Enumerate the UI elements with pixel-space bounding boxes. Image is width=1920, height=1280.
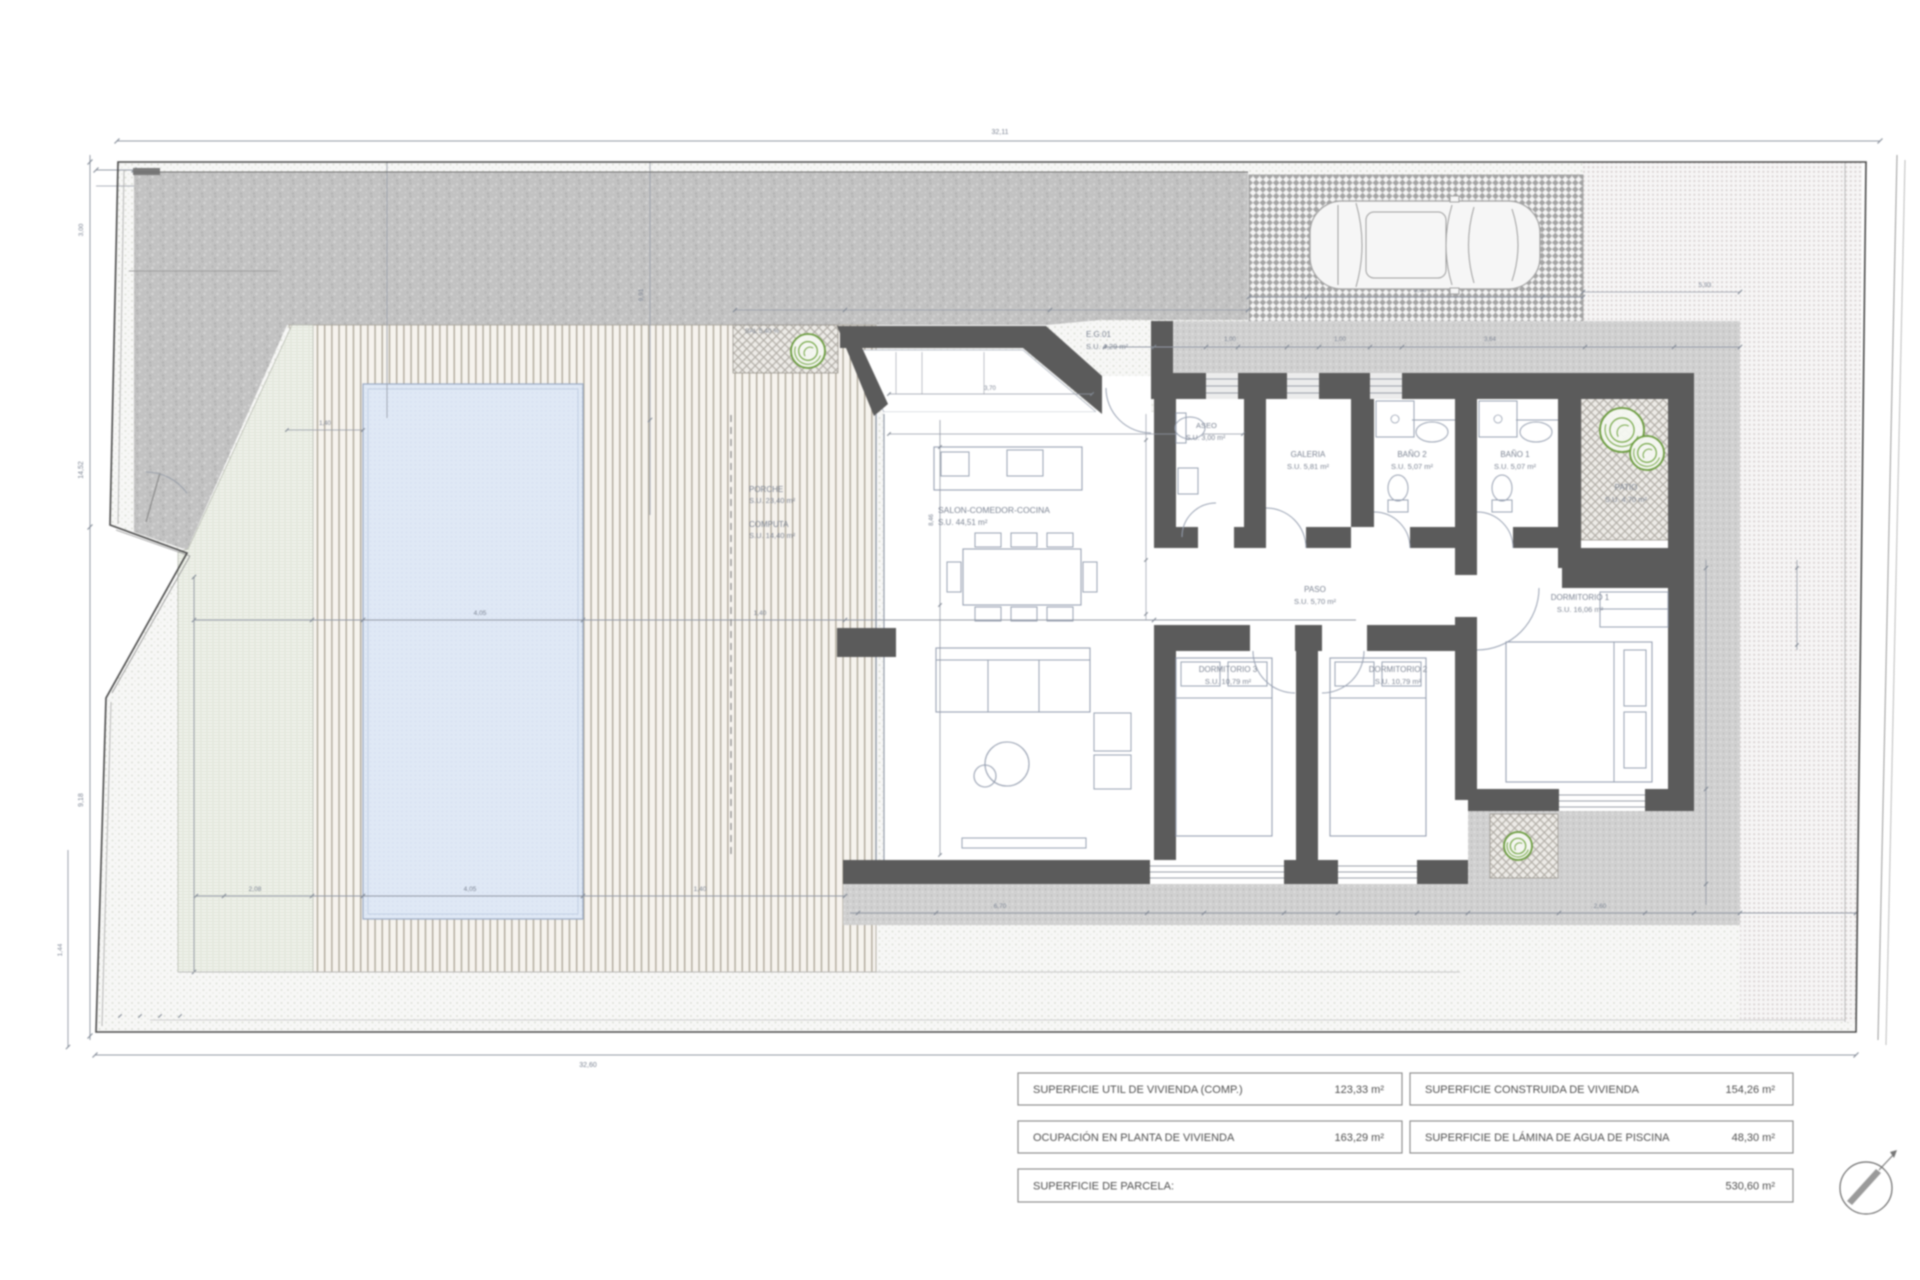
svg-text:SUPERFICIE CONSTRUIDA DE VIVIE: SUPERFICIE CONSTRUIDA DE VIVIENDA (1425, 1084, 1640, 1096)
svg-text:123,33 m²: 123,33 m² (1334, 1084, 1384, 1096)
svg-text:S.U. 3,00 m²: S.U. 3,00 m² (1186, 435, 1226, 442)
svg-text:SUPERFICIE DE PARCELA:: SUPERFICIE DE PARCELA: (1033, 1181, 1174, 1193)
svg-text:48,30 m²: 48,30 m² (1732, 1132, 1776, 1144)
svg-text:1,40: 1,40 (754, 610, 767, 617)
svg-text:14,52: 14,52 (78, 461, 85, 479)
svg-text:32,11: 32,11 (992, 129, 1009, 136)
svg-text:PORCHE: PORCHE (749, 485, 783, 494)
svg-text:S.U. 5,07 m²: S.U. 5,07 m² (1494, 462, 1537, 471)
svg-text:BAÑO 1: BAÑO 1 (1500, 450, 1530, 459)
svg-text:163,29 m²: 163,29 m² (1334, 1132, 1384, 1144)
svg-text:ASEO: ASEO (1196, 421, 1217, 430)
svg-text:SUPERFICIE UTIL DE VIVIENDA (: SUPERFICIE UTIL DE VIVIENDA (COMP.) (1033, 1084, 1243, 1096)
svg-text:DORMITORIO 3: DORMITORIO 3 (1199, 665, 1258, 674)
svg-text:1,40: 1,40 (319, 421, 331, 427)
svg-text:PATIO: PATIO (1615, 483, 1638, 492)
svg-text:4,05: 4,05 (474, 610, 487, 617)
svg-text:S.U. 4,29 m²: S.U. 4,29 m² (1086, 342, 1129, 351)
svg-text:COMPUTA: COMPUTA (749, 520, 789, 529)
svg-text:1,40: 1,40 (694, 886, 707, 893)
svg-text:BAÑO 2: BAÑO 2 (1397, 450, 1427, 459)
svg-text:2,08: 2,08 (249, 886, 262, 893)
svg-text:S.U. 14,40 m²: S.U. 14,40 m² (749, 531, 796, 540)
svg-text:4,05: 4,05 (464, 886, 477, 893)
svg-text:2,60: 2,60 (1594, 903, 1607, 910)
svg-text:154,26 m²: 154,26 m² (1725, 1084, 1775, 1096)
svg-text:8,46: 8,46 (929, 514, 935, 526)
svg-text:SAL 5,40 %: SAL 5,40 % (745, 328, 779, 335)
svg-text:PASO: PASO (1304, 585, 1326, 594)
svg-text:5,93: 5,93 (1699, 282, 1712, 289)
svg-text:S.U. 5,70 m²: S.U. 5,70 m² (1294, 597, 1337, 606)
svg-text:GALERIA: GALERIA (1291, 450, 1326, 459)
svg-text:1,00: 1,00 (1224, 337, 1236, 343)
svg-text:OCUPACIÓN EN PLANTA DE VIVIEND: OCUPACIÓN EN PLANTA DE VIVIENDA (1033, 1131, 1235, 1144)
svg-text:S.U. 5,81 m²: S.U. 5,81 m² (1287, 462, 1330, 471)
svg-text:E.G.01: E.G.01 (1086, 330, 1111, 339)
svg-text:DORMITORIO 2: DORMITORIO 2 (1369, 665, 1428, 674)
svg-text:1,00: 1,00 (1334, 337, 1346, 343)
svg-text:6,70: 6,70 (994, 903, 1007, 910)
svg-text:1,44: 1,44 (57, 943, 64, 956)
svg-text:S.U. 23,40 m²: S.U. 23,40 m² (749, 496, 796, 505)
svg-text:3,70: 3,70 (984, 386, 996, 392)
svg-text:S.U. 16,06 m²: S.U. 16,06 m² (1557, 605, 1604, 614)
svg-text:S.U. 4,70 m²: S.U. 4,70 m² (1605, 495, 1648, 504)
svg-text:S.U. 5,07 m²: S.U. 5,07 m² (1391, 462, 1434, 471)
svg-text:32,60: 32,60 (579, 1062, 597, 1069)
svg-text:530,60 m²: 530,60 m² (1725, 1181, 1775, 1193)
svg-text:S.U. 10,79 m²: S.U. 10,79 m² (1205, 677, 1252, 686)
svg-text:SUPERFICIE DE LÁMINA DE AGUA D: SUPERFICIE DE LÁMINA DE AGUA DE PISCINA (1425, 1131, 1670, 1144)
svg-text:3,64: 3,64 (1484, 337, 1496, 343)
svg-text:S.U. 10,79 m²: S.U. 10,79 m² (1375, 677, 1422, 686)
svg-text:9,91: 9,91 (638, 288, 645, 301)
svg-text:DORMITORIO 1: DORMITORIO 1 (1551, 593, 1610, 602)
svg-text:9,18: 9,18 (78, 793, 85, 807)
svg-text:3,00: 3,00 (78, 223, 85, 236)
svg-text:S.U. 44,51 m²: S.U. 44,51 m² (938, 518, 988, 527)
svg-text:SALON-COMEDOR-COCINA: SALON-COMEDOR-COCINA (938, 505, 1050, 515)
